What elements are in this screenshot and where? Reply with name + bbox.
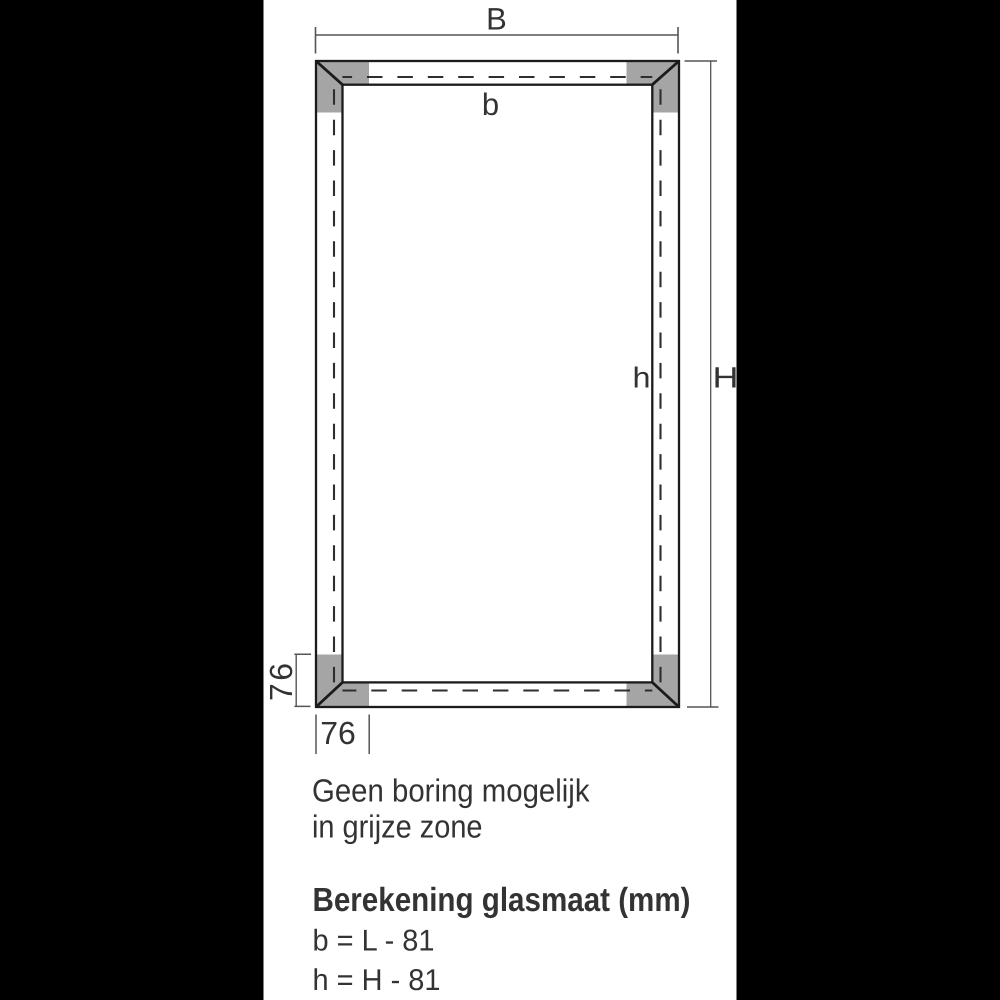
svg-text:b: b — [482, 87, 499, 122]
svg-text:Berekening glasmaat (mm): Berekening glasmaat (mm) — [313, 882, 691, 919]
svg-text:h: h — [633, 363, 651, 395]
svg-text:B: B — [486, 1, 507, 36]
svg-text:Geen boring mogelijk: Geen boring mogelijk — [312, 772, 590, 808]
svg-text:H: H — [713, 362, 739, 395]
svg-text:in grijze zone: in grijze zone — [312, 808, 483, 844]
svg-text:h = H - 81: h = H - 81 — [313, 964, 441, 997]
svg-text:b = L - 81: b = L - 81 — [313, 925, 435, 958]
svg-text:76: 76 — [320, 715, 356, 751]
